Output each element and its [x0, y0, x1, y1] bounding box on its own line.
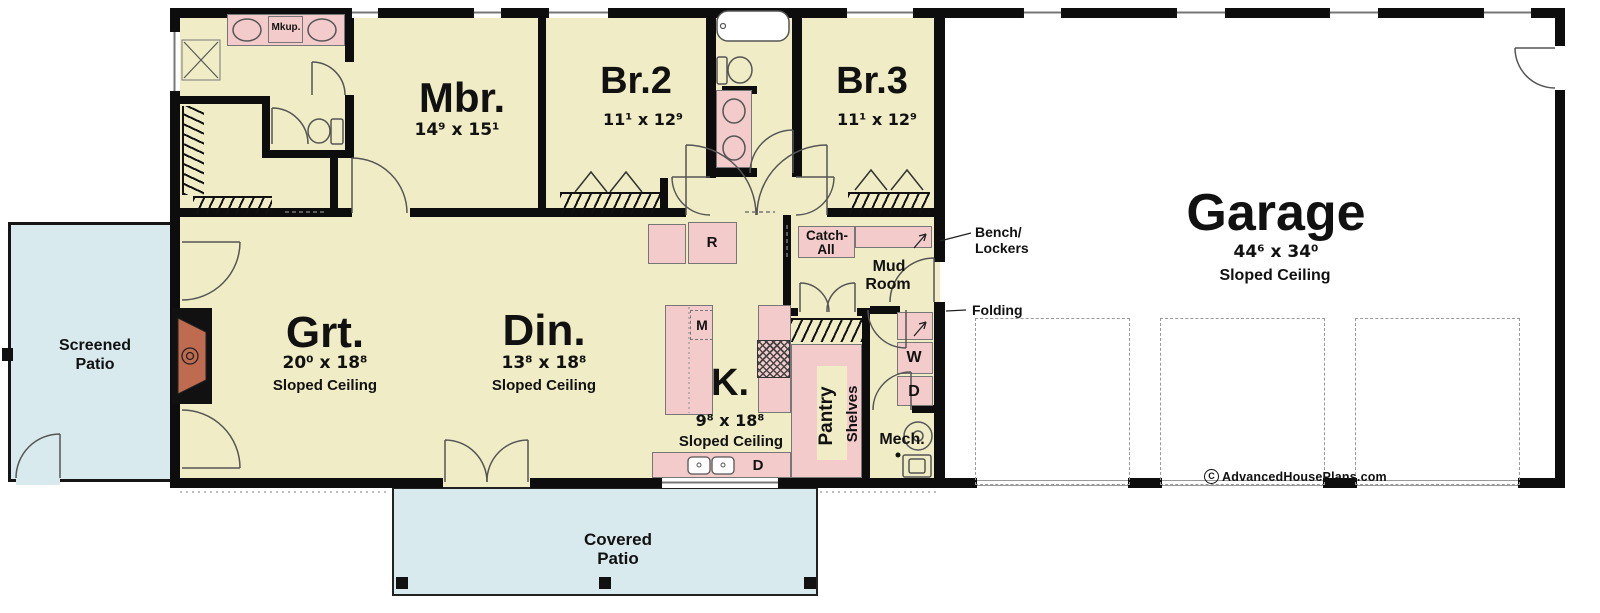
room-label-mud-1: Mud	[839, 259, 939, 276]
folding-counter	[897, 312, 933, 340]
bench-lockers-label-2: Lockers	[975, 241, 1029, 256]
pantry-label: Pantry	[817, 356, 837, 476]
room-label-br3: Br.3	[772, 62, 972, 102]
room-note-din: Sloped Ceiling	[444, 378, 644, 394]
room-dims-br2: 11¹ x 12⁹	[543, 112, 743, 129]
floor-plan: Mbr. 14⁹ x 15¹ Br.2 11¹ x 12⁹ Br.3 11¹ x…	[0, 0, 1600, 613]
wall-hall-nub	[660, 178, 668, 208]
wall-bottom	[530, 478, 660, 488]
dishwasher-label: D	[738, 458, 778, 474]
room-label-mbr: Mbr.	[362, 76, 562, 120]
br2-closet-rod	[560, 192, 660, 214]
makeup-label: Mkup.	[266, 23, 306, 34]
wall-pantry-right	[862, 308, 870, 478]
room-dims-kitchen: 9⁸ x 18⁸	[660, 413, 800, 430]
room-label-covered-patio-1: Covered	[518, 531, 718, 549]
room-dims-br3: 11¹ x 12⁹	[777, 112, 977, 129]
bench-lockers	[855, 226, 932, 248]
wall-mtoilet	[262, 150, 354, 158]
folding-label: Folding	[972, 303, 1023, 318]
wall-below-dryer	[912, 405, 934, 413]
patio-post	[396, 577, 408, 589]
room-note-grt: Sloped Ceiling	[225, 378, 425, 394]
room-label-br2: Br.2	[536, 62, 736, 102]
room-label-grt: Grt.	[225, 310, 425, 356]
window	[1482, 8, 1533, 18]
room-label-garage: Garage	[1126, 186, 1426, 241]
refrigerator-label: R	[692, 235, 732, 251]
coat-closet-rod	[791, 318, 862, 342]
wall-right-garage	[1555, 90, 1565, 488]
garage-stall	[1355, 318, 1520, 485]
credit: C AdvancedHousePlans.com	[1204, 469, 1387, 484]
room-label-din: Din.	[444, 308, 644, 354]
garage-stall	[975, 318, 1130, 485]
window	[1022, 8, 1063, 18]
wall-mtoilet	[262, 96, 270, 158]
patio-post	[804, 577, 816, 589]
patio-post	[2, 348, 13, 361]
mech-label: Mech.	[862, 432, 942, 449]
room-dims-din: 13⁸ x 18⁸	[444, 355, 644, 373]
wall-house-garage	[934, 302, 945, 488]
bench-lockers-label-1: Bench/	[975, 225, 1022, 240]
wall-mbath	[180, 96, 268, 104]
wall-mud-left	[783, 215, 791, 312]
washer-label: W	[894, 350, 934, 367]
window	[472, 8, 503, 18]
window	[350, 8, 380, 18]
wall-bottom-garage	[1128, 478, 1162, 488]
room-label-covered-patio-2: Patio	[518, 550, 718, 568]
shelves-label: Shelves	[845, 359, 861, 469]
credit-text: AdvancedHousePlans.com	[1222, 470, 1387, 484]
room-dims-grt: 20⁰ x 18⁸	[225, 355, 425, 373]
wall-bath-bottom	[714, 168, 757, 177]
kitchen-upper-cabinet	[648, 224, 686, 264]
room-note-kitchen: Sloped Ceiling	[661, 434, 801, 450]
wall-house-garage	[934, 8, 945, 262]
window	[547, 8, 610, 18]
window	[845, 8, 915, 18]
room-dims-garage: 44⁶ x 34⁰	[1176, 244, 1376, 262]
room-label-screened-patio-2: Patio	[25, 357, 165, 374]
kitchen-sink-window	[660, 478, 780, 488]
room-dims-mbr: 14⁹ x 15¹	[357, 122, 557, 140]
master-closet-rod	[182, 106, 204, 195]
window	[1328, 8, 1380, 18]
room-label-mud-2: Room	[838, 277, 938, 294]
wall-mcloset	[330, 158, 338, 208]
room-label-screened-patio-1: Screened	[25, 338, 165, 355]
br3-closet-rod	[848, 192, 930, 214]
screened-patio-door-gap	[16, 476, 60, 485]
wall-laundry-top	[870, 306, 900, 314]
room-label-kitchen: K.	[680, 364, 780, 404]
wall-mbath	[345, 95, 354, 158]
microwave-label: M	[682, 318, 722, 333]
catch-all-label-2: All	[796, 243, 856, 257]
wall-bottom	[780, 478, 977, 488]
patio-post	[599, 577, 611, 589]
dryer-label: D	[894, 384, 934, 401]
garage-stall	[1160, 318, 1325, 485]
master-closet-rod	[193, 196, 272, 214]
window	[170, 30, 180, 93]
window	[1175, 8, 1227, 18]
wall-right-garage	[1555, 8, 1565, 46]
room-note-garage: Sloped Ceiling	[1175, 268, 1375, 285]
copyright-icon: C	[1204, 469, 1219, 484]
wall-bottom	[170, 478, 443, 488]
